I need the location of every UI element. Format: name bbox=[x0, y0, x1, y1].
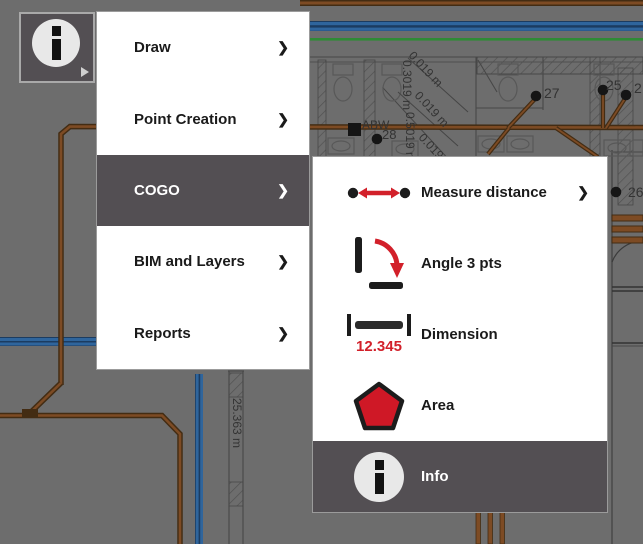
chevron-right-icon: ❯ bbox=[277, 182, 289, 199]
angle-3pts-icon bbox=[337, 237, 421, 290]
menu-item-cogo[interactable]: COGO ❯ bbox=[97, 155, 309, 226]
menu-item-label: BIM and Layers bbox=[134, 253, 277, 270]
submenu-indicator-triangle bbox=[81, 67, 89, 77]
chevron-right-icon: ❯ bbox=[277, 39, 289, 56]
main-menu: Draw ❯ Point Creation ❯ COGO ❯ BIM and L… bbox=[96, 11, 310, 370]
plan-label: 25 bbox=[606, 77, 622, 93]
submenu-item-label: Measure distance bbox=[421, 184, 577, 201]
chevron-right-icon: ❯ bbox=[577, 184, 589, 201]
plan-label: 28 bbox=[382, 127, 396, 142]
dimension-value-text: 12.345 bbox=[356, 338, 402, 355]
menu-item-label: COGO bbox=[134, 182, 277, 199]
menu-item-label: Point Creation bbox=[134, 111, 277, 128]
menu-item-bim-and-layers[interactable]: BIM and Layers ❯ bbox=[97, 226, 309, 297]
submenu-item-info[interactable]: Info bbox=[313, 441, 607, 512]
chevron-right-icon: ❯ bbox=[277, 111, 289, 128]
chevron-right-icon: ❯ bbox=[277, 253, 289, 270]
menu-item-label: Reports bbox=[134, 325, 277, 342]
submenu-item-label: Info bbox=[421, 468, 607, 485]
submenu-item-label: Area bbox=[421, 397, 607, 414]
menu-item-reports[interactable]: Reports ❯ bbox=[97, 298, 309, 369]
dimension-icon: 12.345 bbox=[337, 314, 421, 355]
info-icon bbox=[354, 452, 404, 502]
submenu-item-label: Angle 3 pts bbox=[421, 255, 607, 272]
menu-item-draw[interactable]: Draw ❯ bbox=[97, 12, 309, 83]
utility-lines-top bbox=[300, 0, 643, 41]
submenu-item-angle-3pts[interactable]: Angle 3 pts bbox=[313, 228, 607, 299]
submenu-item-measure-distance[interactable]: Measure distance ❯ bbox=[313, 157, 607, 228]
menu-item-point-creation[interactable]: Point Creation ❯ bbox=[97, 83, 309, 154]
plan-label: 27 bbox=[544, 85, 560, 101]
submenu-item-label: Dimension bbox=[421, 326, 607, 343]
submenu-item-area[interactable]: Area bbox=[313, 370, 607, 441]
plan-label: 2 bbox=[634, 80, 642, 96]
measure-distance-icon bbox=[337, 183, 421, 203]
chevron-right-icon: ❯ bbox=[277, 325, 289, 342]
plan-label: 26 bbox=[628, 184, 643, 200]
menu-item-label: Draw bbox=[134, 39, 277, 56]
submenu-item-dimension[interactable]: 12.345 Dimension bbox=[313, 299, 607, 370]
info-icon bbox=[32, 19, 80, 67]
plan-label: 0.3019 m bbox=[400, 60, 414, 110]
area-icon bbox=[337, 381, 421, 431]
plan-label: 0.5019 m bbox=[403, 112, 417, 162]
app-window: 2725226ABW2825.363 m0.019 m0.019 m0.019 … bbox=[0, 0, 643, 544]
plan-label: 25.363 m bbox=[230, 398, 244, 448]
cogo-submenu: Measure distance ❯ Angle 3 pts bbox=[312, 156, 608, 513]
info-tool-button[interactable] bbox=[19, 12, 95, 83]
